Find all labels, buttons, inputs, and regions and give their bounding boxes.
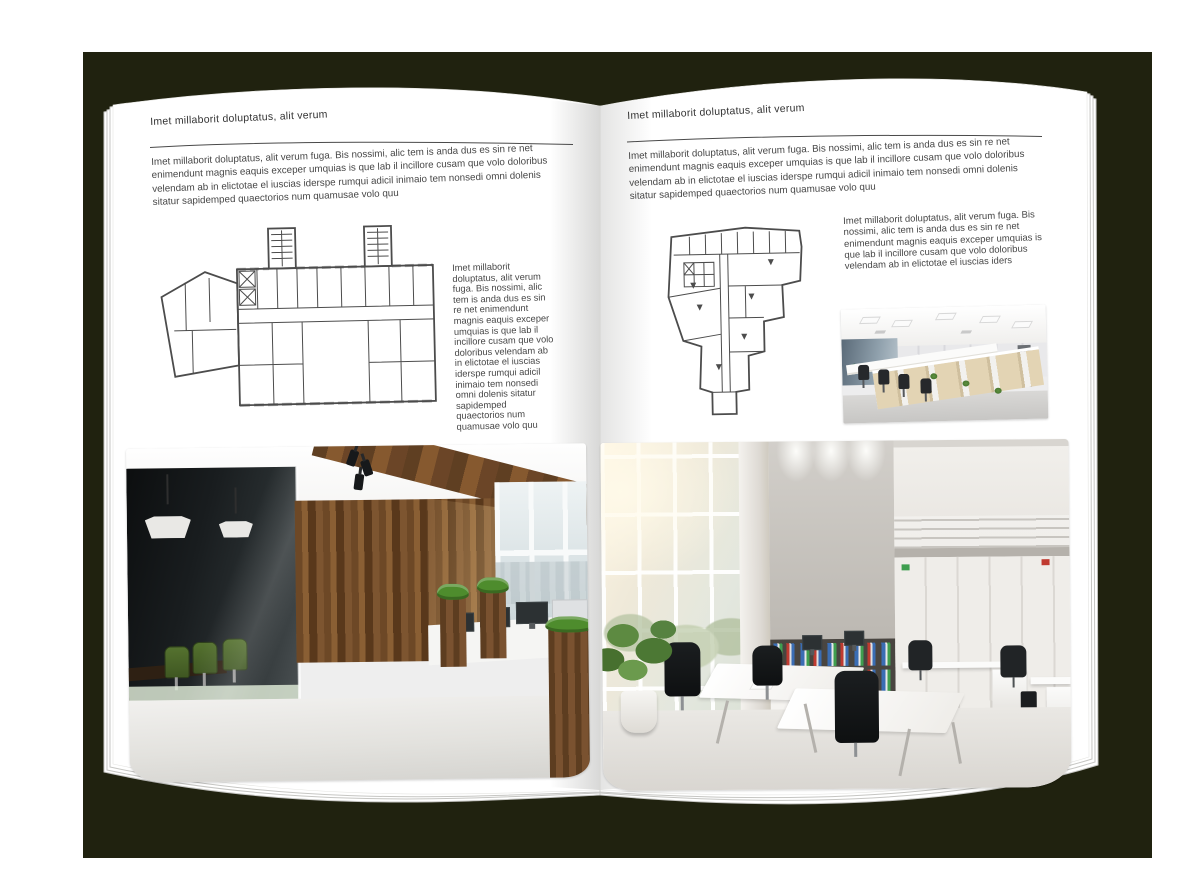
side-paragraph: Imet millaborit doluptatus, alit verum f… <box>843 209 1045 272</box>
plan-elevator-core <box>239 271 256 305</box>
photo-open-office-small <box>841 305 1049 424</box>
plant-foliage <box>600 606 690 703</box>
grass-planter <box>480 590 507 658</box>
glass-reflection <box>126 467 301 701</box>
page-title: Imet millaborit doluptatus, alit verum <box>150 104 430 128</box>
right-page: Imet millaborit doluptatus, alit verum I… <box>600 0 1200 891</box>
side-paragraph: Imet millaborit doluptatus, alit verum f… <box>452 260 558 432</box>
monitor <box>516 602 548 624</box>
ceiling-vent <box>874 330 886 333</box>
magazine-mockup-stage: Imet millaborit doluptatus, alit verum I… <box>0 0 1200 891</box>
page-title: Imet millaborit doluptatus, alit verum <box>627 97 907 122</box>
office-chair <box>752 645 782 685</box>
floor-plan-right <box>649 222 813 423</box>
plan-window-ticks <box>237 265 436 405</box>
binder-row <box>773 643 892 667</box>
office-chair <box>834 671 879 743</box>
office-chair <box>1000 645 1026 677</box>
grass-planter <box>440 597 467 667</box>
plan-door-marks <box>690 259 776 371</box>
city-view <box>495 561 588 604</box>
plan-stairs <box>271 228 389 267</box>
desk <box>1031 677 1071 684</box>
intro-paragraph: Imet millaborit doluptatus, alit verum f… <box>628 135 1028 204</box>
plan-outline <box>160 225 436 407</box>
grass-planter <box>548 629 590 780</box>
intro-paragraph: Imet millaborit doluptatus, alit verum f… <box>151 141 563 210</box>
office-chair <box>878 369 889 384</box>
plant-pot <box>621 691 657 733</box>
monitor <box>802 635 822 650</box>
cabinet-wall <box>895 556 1071 710</box>
office-chair <box>920 378 931 393</box>
monitor <box>844 631 864 646</box>
mezzanine-railing <box>894 515 1069 549</box>
plan-interior-walls <box>667 231 802 394</box>
plan-interior-walls <box>173 265 436 407</box>
left-page: Imet millaborit doluptatus, alit verum I… <box>0 0 600 891</box>
exit-sign <box>902 564 910 570</box>
office-chair <box>898 374 909 389</box>
office-chair <box>858 365 869 380</box>
plan-elevator-core <box>684 262 714 287</box>
concrete-wall <box>768 440 895 639</box>
photo-loft-office <box>126 443 590 783</box>
office-chair <box>908 640 932 670</box>
floor-plan-left <box>150 221 448 416</box>
ceiling-vent <box>960 330 972 333</box>
concrete-floor <box>129 695 590 783</box>
photo-atrium-office <box>600 439 1071 791</box>
fire-sign <box>1042 559 1050 565</box>
